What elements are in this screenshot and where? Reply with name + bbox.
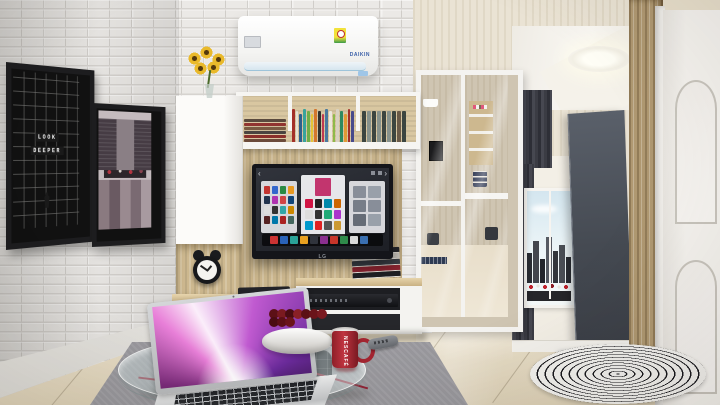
color-item <box>120 180 131 229</box>
color-item <box>324 199 332 208</box>
color-item <box>288 206 294 214</box>
stacked-books <box>244 118 286 142</box>
white-bowl <box>262 328 332 354</box>
color-item <box>310 236 318 244</box>
sunflower <box>200 46 213 59</box>
color-item <box>288 196 294 204</box>
screen-status-icons <box>371 171 383 175</box>
shutter-right <box>134 120 151 170</box>
color-item <box>348 109 351 142</box>
color-item <box>141 180 151 228</box>
photo-window <box>98 118 151 170</box>
color-item <box>324 210 332 219</box>
color-item <box>559 245 564 283</box>
color-item <box>330 236 338 244</box>
shelf-divider <box>356 96 360 131</box>
app-panel-right <box>349 181 385 233</box>
color-item <box>296 111 299 142</box>
color-item <box>392 111 396 142</box>
mug-brand-text: NESCAFÉ <box>332 336 358 366</box>
color-item <box>299 114 302 142</box>
window-mullion <box>549 191 551 299</box>
color-item <box>324 221 332 230</box>
color-item <box>305 221 313 230</box>
color-item <box>270 236 278 244</box>
cloud <box>531 205 557 213</box>
photo-stripes <box>98 180 151 230</box>
color-item <box>322 114 325 142</box>
app-panel-left <box>261 181 297 233</box>
app-tiles <box>305 199 341 230</box>
color-item <box>527 253 532 283</box>
color-item <box>272 186 278 194</box>
tv-brand-logo: LG <box>252 254 393 260</box>
color-item <box>307 111 310 142</box>
alarm-clock <box>190 250 224 292</box>
color-item <box>311 114 314 142</box>
dock-arrow-right: › <box>384 169 387 179</box>
color-item <box>305 199 313 208</box>
color-item <box>368 200 381 212</box>
color-item <box>285 317 295 327</box>
framed-art-look-deeper: LOOK DEEPER <box>6 62 94 250</box>
color-item <box>360 236 368 244</box>
color-item <box>344 114 347 142</box>
color-item <box>334 221 342 230</box>
ac-blue-sticker <box>358 71 368 76</box>
color-item <box>98 180 109 230</box>
color-item <box>244 135 286 138</box>
shutter-left <box>98 118 116 170</box>
color-item <box>334 210 342 219</box>
color-item <box>109 180 120 229</box>
color-item <box>305 210 313 219</box>
energy-label-dot <box>337 30 345 38</box>
tv-screen: ‹ › <box>256 168 389 251</box>
color-item <box>540 259 545 283</box>
color-item <box>318 111 321 142</box>
color-item <box>244 119 286 122</box>
ac-vent <box>244 62 366 71</box>
laptop-camera-dot <box>232 296 234 298</box>
color-item <box>131 180 141 229</box>
color-item <box>300 236 308 244</box>
white-door <box>663 10 720 405</box>
color-item <box>315 199 323 208</box>
color-item <box>264 186 270 194</box>
color-item <box>350 236 358 244</box>
clock-cubby <box>176 244 242 294</box>
color-item <box>315 178 331 196</box>
color-item <box>340 236 348 244</box>
window-photo <box>98 110 151 229</box>
color-item <box>315 210 323 219</box>
color-item <box>351 111 354 142</box>
dock-arrow-left: ‹ <box>258 169 261 179</box>
color-item <box>353 186 366 198</box>
color-item <box>244 139 286 142</box>
color-item <box>280 186 286 194</box>
color-item <box>325 109 328 142</box>
color-item <box>272 196 278 204</box>
book-spines <box>292 109 354 142</box>
ac-display-panel <box>244 36 261 48</box>
dark-partition-panel <box>567 110 632 352</box>
color-item <box>272 216 278 224</box>
color-item <box>353 200 366 212</box>
color-item <box>367 111 371 142</box>
color-item <box>290 236 298 244</box>
nescafe-mug: NESCAFÉ <box>330 320 374 376</box>
lg-smart-tv: ‹ › LG <box>252 164 393 259</box>
sunflower <box>194 62 207 75</box>
color-item <box>333 114 336 142</box>
cherries <box>270 310 328 326</box>
dvd-knob <box>387 298 392 303</box>
color-item <box>264 206 270 214</box>
glass-vase <box>203 84 216 98</box>
mug-reflection <box>336 366 356 372</box>
color-item <box>397 111 401 142</box>
mirror-panel-right <box>465 75 508 317</box>
spiral-round-mat <box>530 344 706 404</box>
art-text-line2: DEEPER <box>31 146 64 155</box>
color-item <box>533 241 538 283</box>
door-panel-molding <box>675 80 717 224</box>
color-item <box>264 196 270 204</box>
color-item <box>280 216 286 224</box>
bedroom-doorway-view <box>512 26 632 352</box>
color-item <box>368 214 381 226</box>
color-item <box>264 216 270 224</box>
shelf-top-wood <box>296 278 422 286</box>
color-item <box>317 309 327 319</box>
color-item <box>336 109 339 142</box>
color-item <box>292 109 295 142</box>
mirror-shine <box>421 75 461 317</box>
color-item <box>329 111 332 142</box>
framed-window-photo <box>92 103 165 247</box>
color-item <box>314 109 317 142</box>
color-item <box>280 196 286 204</box>
cherry-bowl <box>262 310 336 360</box>
color-item <box>280 236 288 244</box>
color-item <box>387 111 391 142</box>
color-item <box>244 131 286 134</box>
remote-buttons <box>374 339 388 344</box>
app-tiles <box>353 186 381 226</box>
color-item <box>320 236 328 244</box>
color-item <box>280 206 286 214</box>
color-item <box>353 214 366 226</box>
living-room-render: LOOK DEEPER <box>0 0 720 405</box>
art-text-line1: LOOK <box>35 133 58 142</box>
color-item <box>340 111 343 142</box>
sunflower-vase <box>186 46 234 98</box>
featured-app-tile <box>315 178 331 196</box>
color-item <box>244 127 286 130</box>
color-item <box>288 216 294 224</box>
app-panel-center <box>301 175 345 237</box>
air-conditioner: DAIKIN <box>238 16 378 76</box>
encyclopedia-volumes <box>362 109 406 142</box>
color-item <box>334 199 342 208</box>
color-item <box>377 111 381 142</box>
color-item <box>382 111 386 142</box>
app-tiles <box>264 186 294 224</box>
color-item <box>362 111 366 142</box>
color-item <box>402 111 406 142</box>
person-silhouette <box>44 192 50 208</box>
energy-label-sticker <box>334 28 346 43</box>
color-item <box>368 186 381 198</box>
color-item <box>566 257 571 283</box>
color-item <box>288 186 294 194</box>
tall-white-cabinet <box>176 96 243 244</box>
ac-brand-logo: DAIKIN <box>350 52 370 58</box>
photo-flower-box <box>104 170 146 178</box>
mug-body: NESCAFÉ <box>332 331 358 368</box>
color-item <box>303 109 306 142</box>
color-item <box>315 221 323 230</box>
mirror-shine <box>465 75 508 317</box>
color-item <box>372 111 376 142</box>
color-item <box>272 206 278 214</box>
mirrored-sliding-wardrobe <box>416 70 523 332</box>
app-dock-bar <box>262 234 383 246</box>
ceiling-light <box>568 46 630 72</box>
color-item <box>244 123 286 126</box>
color-item <box>553 251 558 283</box>
mirror-panel-left <box>421 75 461 317</box>
bookshelf <box>236 92 420 149</box>
building-facade-photo: LOOK DEEPER <box>13 71 79 230</box>
